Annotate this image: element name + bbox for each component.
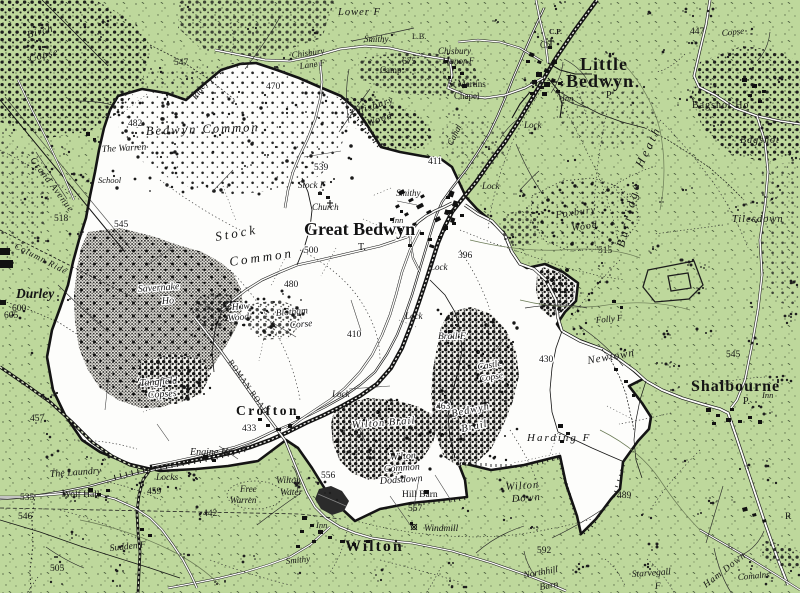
svg-text:Inn: Inn xyxy=(761,390,773,400)
svg-text:Hill Barn: Hill Barn xyxy=(402,490,438,500)
svg-text:Lock: Lock xyxy=(481,181,501,191)
svg-text:Windmill: Windmill xyxy=(424,524,459,534)
svg-text:411: 411 xyxy=(428,157,442,167)
svg-text:T.: T. xyxy=(358,242,366,253)
svg-text:School: School xyxy=(98,175,122,185)
svg-text:Lock: Lock xyxy=(404,311,424,321)
svg-text:675: 675 xyxy=(402,57,417,67)
svg-text:Wolf Hall: Wolf Hall xyxy=(62,489,100,500)
svg-text:500: 500 xyxy=(304,246,319,256)
svg-text:Chapel: Chapel xyxy=(454,91,480,101)
svg-text:Harding F: Harding F xyxy=(526,432,591,444)
svg-text:Corse: Corse xyxy=(289,319,312,331)
svg-text:480: 480 xyxy=(284,280,299,290)
svg-text:C.P.: C.P. xyxy=(549,27,562,36)
svg-text:396: 396 xyxy=(458,251,473,261)
svg-text:Engine Ho: Engine Ho xyxy=(189,447,233,458)
svg-text:Ho: Ho xyxy=(160,295,174,307)
svg-text:535: 535 xyxy=(20,493,35,503)
svg-text:Bagshot: Bagshot xyxy=(740,135,780,146)
svg-text:482: 482 xyxy=(128,119,143,129)
svg-text:442: 442 xyxy=(203,509,218,519)
svg-text:Lock: Lock xyxy=(429,262,449,272)
svg-text:Manor F: Manor F xyxy=(441,56,475,66)
svg-text:Inn: Inn xyxy=(315,520,327,530)
svg-text:539: 539 xyxy=(314,163,329,173)
svg-text:Bagshot Ho: Bagshot Ho xyxy=(692,100,750,111)
svg-text:592: 592 xyxy=(537,546,552,556)
svg-text:Water: Water xyxy=(280,488,303,498)
svg-text:545: 545 xyxy=(114,220,129,230)
svg-text:430: 430 xyxy=(539,355,554,365)
svg-text:Lower F: Lower F xyxy=(337,7,381,18)
svg-text:505: 505 xyxy=(50,564,65,574)
svg-text:Locks: Locks xyxy=(155,473,178,483)
svg-text:Copses: Copses xyxy=(147,388,177,401)
svg-text:Camp: Camp xyxy=(380,65,402,75)
svg-text:410: 410 xyxy=(347,330,362,340)
svg-text:Smithy: Smithy xyxy=(364,34,389,44)
svg-text:Wilton: Wilton xyxy=(505,480,539,493)
svg-text:557: 557 xyxy=(408,504,423,514)
svg-text:470: 470 xyxy=(266,82,281,92)
svg-text:Church: Church xyxy=(312,202,339,212)
svg-text:489: 489 xyxy=(617,491,632,501)
svg-text:Ch.: Ch. xyxy=(540,40,553,50)
svg-text:Lock: Lock xyxy=(331,389,351,399)
svg-text:Tilesdown: Tilesdown xyxy=(732,214,784,225)
svg-text:518: 518 xyxy=(54,214,69,224)
svg-text:R: R xyxy=(785,512,792,522)
svg-text:F: F xyxy=(654,582,662,592)
svg-text:Lock: Lock xyxy=(523,120,543,130)
svg-text:P.: P. xyxy=(743,396,750,407)
svg-text:Smithy: Smithy xyxy=(396,188,421,198)
svg-text:St Martins: St Martins xyxy=(448,79,486,89)
svg-text:Down: Down xyxy=(510,492,541,505)
svg-text:547: 547 xyxy=(174,58,189,68)
svg-text:447: 447 xyxy=(690,27,705,37)
svg-text:463: 463 xyxy=(436,402,451,412)
svg-text:433: 433 xyxy=(242,424,257,434)
svg-text:Warren: Warren xyxy=(230,495,257,505)
svg-text:457: 457 xyxy=(30,414,45,424)
svg-text:545: 545 xyxy=(726,350,741,360)
svg-text:Free: Free xyxy=(239,484,257,494)
svg-text:556: 556 xyxy=(321,471,336,481)
svg-text:L.B.: L.B. xyxy=(412,32,426,41)
svg-text:Durley: Durley xyxy=(15,286,55,301)
svg-text:515: 515 xyxy=(598,246,613,256)
svg-text:546: 546 xyxy=(18,512,33,522)
svg-text:Chisbury: Chisbury xyxy=(438,46,471,56)
